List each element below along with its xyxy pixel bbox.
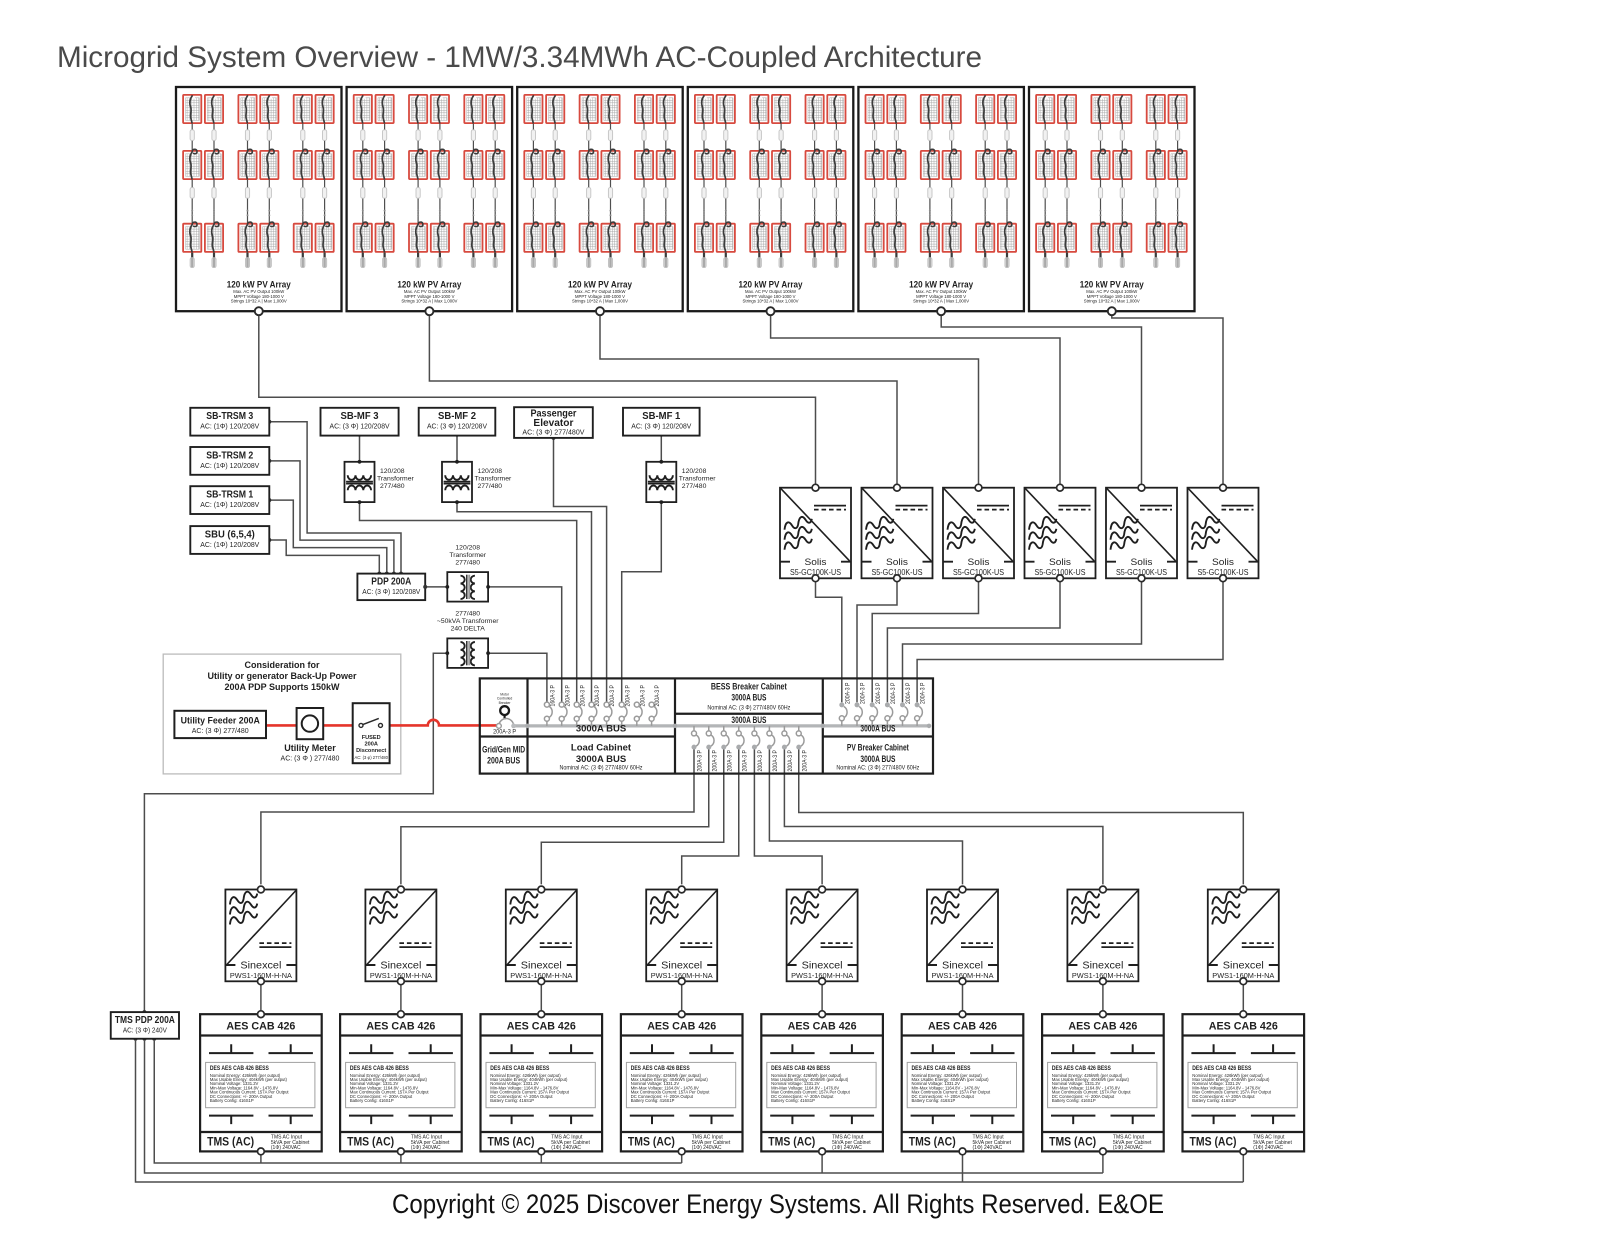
svg-text:Transformer: Transformer xyxy=(449,552,486,559)
svg-text:AES CAB 426: AES CAB 426 xyxy=(226,1021,295,1033)
svg-text:200A-3 P: 200A-3 P xyxy=(757,750,764,772)
svg-text:Sinexcel: Sinexcel xyxy=(1223,960,1264,972)
svg-text:120/208: 120/208 xyxy=(380,468,405,475)
svg-text:SB-TRSM 1: SB-TRSM 1 xyxy=(206,490,253,501)
svg-text:Battery Config: 416S1P: Battery Config: 416S1P xyxy=(912,1098,956,1103)
svg-text:AES CAB 426: AES CAB 426 xyxy=(507,1021,576,1033)
svg-text:Sinexcel: Sinexcel xyxy=(661,960,702,972)
svg-text:SB-MF 1: SB-MF 1 xyxy=(642,411,680,422)
svg-text:277/480: 277/480 xyxy=(455,611,480,618)
svg-text:AES CAB 426: AES CAB 426 xyxy=(928,1021,997,1033)
svg-text:Nominal AC: (3 Φ) 277/480V 60H: Nominal AC: (3 Φ) 277/480V 60Hz xyxy=(707,705,790,712)
svg-text:DES AES CAB 426 BESS: DES AES CAB 426 BESS xyxy=(771,1065,831,1072)
svg-text:Sinexcel: Sinexcel xyxy=(240,960,281,972)
svg-text:(1Φ) 240VAC: (1Φ) 240VAC xyxy=(411,1145,441,1151)
svg-text:Battery Config: 416S1P: Battery Config: 416S1P xyxy=(1052,1098,1096,1103)
svg-text:3000A BUS: 3000A BUS xyxy=(731,693,766,703)
svg-text:200A-3 P: 200A-3 P xyxy=(920,683,927,705)
svg-text:Breaker: Breaker xyxy=(499,701,512,705)
svg-text:(1Φ) 240VAC: (1Φ) 240VAC xyxy=(1113,1145,1143,1151)
svg-text:AC: (3 Φ ) 277/480: AC: (3 Φ ) 277/480 xyxy=(281,756,340,763)
svg-text:Battery Config: 416S1P: Battery Config: 416S1P xyxy=(350,1098,394,1103)
svg-text:Strings 10*32 A | Max 1,000V: Strings 10*32 A | Max 1,000V xyxy=(231,299,288,305)
svg-text:Sinexcel: Sinexcel xyxy=(521,960,562,972)
svg-text:TMS (AC): TMS (AC) xyxy=(909,1137,956,1149)
svg-text:3000A BUS: 3000A BUS xyxy=(860,724,895,734)
svg-text:(1Φ) 240VAC: (1Φ) 240VAC xyxy=(271,1145,301,1151)
svg-text:AC: (3 φ) 277/480: AC: (3 φ) 277/480 xyxy=(354,755,388,760)
svg-text:3000A BUS: 3000A BUS xyxy=(731,715,766,725)
svg-text:SBU (6,5,4): SBU (6,5,4) xyxy=(205,530,255,541)
svg-text:FUSED: FUSED xyxy=(362,735,381,741)
svg-text:SB-MF 3: SB-MF 3 xyxy=(341,411,379,422)
svg-text:Solis: Solis xyxy=(805,557,827,568)
svg-text:200A-3 P: 200A-3 P xyxy=(594,685,601,707)
svg-text:TMS (AC): TMS (AC) xyxy=(488,1137,535,1149)
svg-text:200A-3 P: 200A-3 P xyxy=(654,685,661,707)
svg-text:PV Breaker Cabinet: PV Breaker Cabinet xyxy=(847,743,909,753)
svg-text:200A-3 P: 200A-3 P xyxy=(772,750,779,772)
svg-text:Nominal AC: (3 Φ) 277/480V 60H: Nominal AC: (3 Φ) 277/480V 60Hz xyxy=(560,765,643,772)
svg-text:(1Φ) 240VAC: (1Φ) 240VAC xyxy=(1253,1145,1283,1151)
svg-text:240 DELTA: 240 DELTA xyxy=(451,626,486,633)
svg-text:AES CAB 426: AES CAB 426 xyxy=(1209,1021,1278,1033)
svg-text:200A-3 P: 200A-3 P xyxy=(875,683,882,705)
svg-text:SB-TRSM 2: SB-TRSM 2 xyxy=(206,450,253,461)
svg-text:Solis: Solis xyxy=(1049,557,1071,568)
svg-text:Transformer: Transformer xyxy=(377,476,414,483)
svg-text:200A-3 P: 200A-3 P xyxy=(564,685,571,707)
svg-text:Solis: Solis xyxy=(886,557,908,568)
svg-text:Battery Config: 416S1P: Battery Config: 416S1P xyxy=(771,1098,815,1103)
svg-text:AES CAB 426: AES CAB 426 xyxy=(647,1021,716,1033)
svg-text:AC: (1Φ) 120/208V: AC: (1Φ) 120/208V xyxy=(200,502,259,509)
svg-text:200A-3 P: 200A-3 P xyxy=(860,683,867,705)
svg-text:SB-MF 2: SB-MF 2 xyxy=(438,411,476,422)
svg-text:Consideration for: Consideration for xyxy=(244,660,319,670)
svg-text:Sinexcel: Sinexcel xyxy=(1082,960,1123,972)
svg-text:200A-3 P: 200A-3 P xyxy=(493,729,516,736)
svg-text:200A PDP Supports 150kW: 200A PDP Supports 150kW xyxy=(224,682,340,692)
svg-text:Microgrid System Overview - 1M: Microgrid System Overview - 1MW/3.34MWh … xyxy=(57,41,982,74)
svg-text:DES AES CAB 426 BESS: DES AES CAB 426 BESS xyxy=(631,1065,691,1072)
svg-text:200A-3 P: 200A-3 P xyxy=(639,685,646,707)
svg-text:200A-3 P: 200A-3 P xyxy=(844,683,851,705)
svg-text:(1Φ) 240VAC: (1Φ) 240VAC xyxy=(551,1145,581,1151)
svg-text:200A: 200A xyxy=(365,742,378,748)
svg-text:Utility Meter: Utility Meter xyxy=(284,743,336,753)
svg-text:Load Cabinet: Load Cabinet xyxy=(571,743,632,754)
svg-text:DES AES CAB 426 BESS: DES AES CAB 426 BESS xyxy=(1192,1065,1252,1072)
svg-text:200A-3 P: 200A-3 P xyxy=(711,750,718,772)
svg-text:DES AES CAB 426 BESS: DES AES CAB 426 BESS xyxy=(1052,1065,1112,1072)
svg-text:(1Φ) 240VAC: (1Φ) 240VAC xyxy=(832,1145,862,1151)
svg-text:120 kW PV Array: 120 kW PV Array xyxy=(568,279,633,290)
svg-text:DES AES CAB 426 BESS: DES AES CAB 426 BESS xyxy=(350,1065,410,1072)
svg-text:200A-3 P: 200A-3 P xyxy=(787,750,794,772)
svg-text:3000A BUS: 3000A BUS xyxy=(860,754,895,764)
svg-text:Disconnect: Disconnect xyxy=(356,748,386,754)
svg-text:AC: (3 Φ) 120/208V: AC: (3 Φ) 120/208V xyxy=(330,424,390,431)
svg-text:BESS Breaker Cabinet: BESS Breaker Cabinet xyxy=(711,682,787,692)
svg-text:AES CAB 426: AES CAB 426 xyxy=(1068,1021,1137,1033)
svg-text:Battery Config: 416S1P: Battery Config: 416S1P xyxy=(1192,1098,1236,1103)
svg-text:AC: (3 Φ) 277/480: AC: (3 Φ) 277/480 xyxy=(192,728,249,735)
svg-text:AC: (3 Φ) 120/208V: AC: (3 Φ) 120/208V xyxy=(362,589,420,596)
svg-text:Strings 10*32 A | Max 1,000V: Strings 10*32 A | Max 1,000V xyxy=(401,299,458,305)
svg-text:200A-3 P: 200A-3 P xyxy=(890,683,897,705)
svg-text:3000A BUS: 3000A BUS xyxy=(576,754,626,765)
svg-text:120/208: 120/208 xyxy=(478,468,503,475)
svg-text:200A-3 P: 200A-3 P xyxy=(624,685,631,707)
svg-text:AC: (3 Φ) 120/208V: AC: (3 Φ) 120/208V xyxy=(631,424,691,431)
svg-text:200A-3 P: 200A-3 P xyxy=(697,750,704,772)
svg-text:Elevator: Elevator xyxy=(533,418,573,429)
svg-text:Copyright © 2025 Discover Ener: Copyright © 2025 Discover Energy Systems… xyxy=(392,1189,1164,1219)
svg-text:DES AES CAB 426 BESS: DES AES CAB 426 BESS xyxy=(490,1065,550,1072)
svg-text:TMS (AC): TMS (AC) xyxy=(347,1137,394,1149)
svg-text:Strings 10*32 A | Max 1,000V: Strings 10*32 A | Max 1,000V xyxy=(572,299,629,305)
svg-text:120 kW PV Array: 120 kW PV Array xyxy=(739,279,804,290)
svg-text:120 kW PV Array: 120 kW PV Array xyxy=(227,279,292,290)
svg-text:200A-3 P: 200A-3 P xyxy=(726,750,733,772)
svg-text:AC: (3 Φ) 120/208V: AC: (3 Φ) 120/208V xyxy=(427,424,487,431)
svg-text:Strings 10*32 A | Max 1,000V: Strings 10*32 A | Max 1,000V xyxy=(913,299,970,305)
svg-text:Strings 10*32 A | Max 1,000V: Strings 10*32 A | Max 1,000V xyxy=(743,299,800,305)
svg-text:120 kW PV Array: 120 kW PV Array xyxy=(397,279,462,290)
svg-text:200A-3 P: 200A-3 P xyxy=(801,750,808,772)
svg-text:TMS (AC): TMS (AC) xyxy=(628,1137,675,1149)
svg-text:AC: (3 Φ) 277/480V: AC: (3 Φ) 277/480V xyxy=(522,430,584,437)
svg-text:277/480: 277/480 xyxy=(380,483,405,490)
svg-text:Transformer: Transformer xyxy=(679,476,716,483)
svg-text:Solis: Solis xyxy=(1212,557,1234,568)
svg-text:Solis: Solis xyxy=(1131,557,1153,568)
svg-text:Solis: Solis xyxy=(968,557,990,568)
svg-text:DES AES CAB 426 BESS: DES AES CAB 426 BESS xyxy=(912,1065,972,1072)
svg-text:Strings 10*32 A | Max 1,000V: Strings 10*32 A | Max 1,000V xyxy=(1084,299,1141,305)
svg-text:TMS (AC): TMS (AC) xyxy=(768,1137,815,1149)
svg-text:Sinexcel: Sinexcel xyxy=(942,960,983,972)
svg-text:Battery Config: 416S1P: Battery Config: 416S1P xyxy=(631,1098,675,1103)
svg-text:Utility or generator Back-Up P: Utility or generator Back-Up Power xyxy=(207,671,357,681)
svg-text:AC: (3 Φ) 240V: AC: (3 Φ) 240V xyxy=(123,1027,167,1034)
svg-text:~50kVA Transformer: ~50kVA Transformer xyxy=(437,618,499,625)
svg-text:120 kW PV Array: 120 kW PV Array xyxy=(1080,279,1145,290)
svg-text:(1Φ) 240VAC: (1Φ) 240VAC xyxy=(973,1145,1003,1151)
svg-text:160A-3 P: 160A-3 P xyxy=(550,685,557,707)
svg-text:Battery Config: 416S1P: Battery Config: 416S1P xyxy=(210,1098,254,1103)
svg-text:277/480: 277/480 xyxy=(455,560,480,567)
svg-text:120 kW PV Array: 120 kW PV Array xyxy=(909,279,974,290)
svg-text:Sinexcel: Sinexcel xyxy=(802,960,843,972)
svg-text:AC: (1Φ) 120/208V: AC: (1Φ) 120/208V xyxy=(200,463,259,470)
svg-text:200A-3 P: 200A-3 P xyxy=(609,685,616,707)
svg-text:200A-3 P: 200A-3 P xyxy=(905,683,912,705)
svg-text:PDP 200A: PDP 200A xyxy=(371,576,411,587)
svg-text:Grid/Gen MID: Grid/Gen MID xyxy=(482,745,525,755)
svg-text:SB-TRSM 3: SB-TRSM 3 xyxy=(206,411,253,422)
svg-text:200A BUS: 200A BUS xyxy=(487,756,520,766)
svg-text:TMS (AC): TMS (AC) xyxy=(1049,1137,1096,1149)
svg-text:277/480: 277/480 xyxy=(682,483,707,490)
svg-text:120/208: 120/208 xyxy=(682,468,707,475)
svg-text:200A-3 P: 200A-3 P xyxy=(741,750,748,772)
svg-text:200A-3 P: 200A-3 P xyxy=(579,685,586,707)
svg-text:TMS (AC): TMS (AC) xyxy=(207,1137,254,1149)
svg-text:Nominal AC: (3 Φ) 277/480V 60H: Nominal AC: (3 Φ) 277/480V 60Hz xyxy=(836,765,919,772)
svg-text:TMS (AC): TMS (AC) xyxy=(1190,1137,1237,1149)
svg-text:Transformer: Transformer xyxy=(475,476,512,483)
svg-text:AC: (1Φ) 120/208V: AC: (1Φ) 120/208V xyxy=(200,424,259,431)
svg-text:120/208: 120/208 xyxy=(455,545,480,552)
svg-text:TMS PDP 200A: TMS PDP 200A xyxy=(115,1015,175,1026)
svg-text:(1Φ) 240VAC: (1Φ) 240VAC xyxy=(692,1145,722,1151)
svg-text:DES AES CAB 426 BESS: DES AES CAB 426 BESS xyxy=(210,1065,270,1072)
svg-text:3000A BUS: 3000A BUS xyxy=(576,724,626,735)
svg-text:AES CAB 426: AES CAB 426 xyxy=(788,1021,857,1033)
svg-text:Utility Feeder 200A: Utility Feeder 200A xyxy=(181,716,261,726)
svg-text:Sinexcel: Sinexcel xyxy=(380,960,421,972)
svg-text:277/480: 277/480 xyxy=(478,483,503,490)
svg-text:Battery Config: 416S1P: Battery Config: 416S1P xyxy=(490,1098,534,1103)
svg-text:AC: (1Φ) 120/208V: AC: (1Φ) 120/208V xyxy=(200,542,259,549)
svg-text:AES CAB 426: AES CAB 426 xyxy=(366,1021,435,1033)
